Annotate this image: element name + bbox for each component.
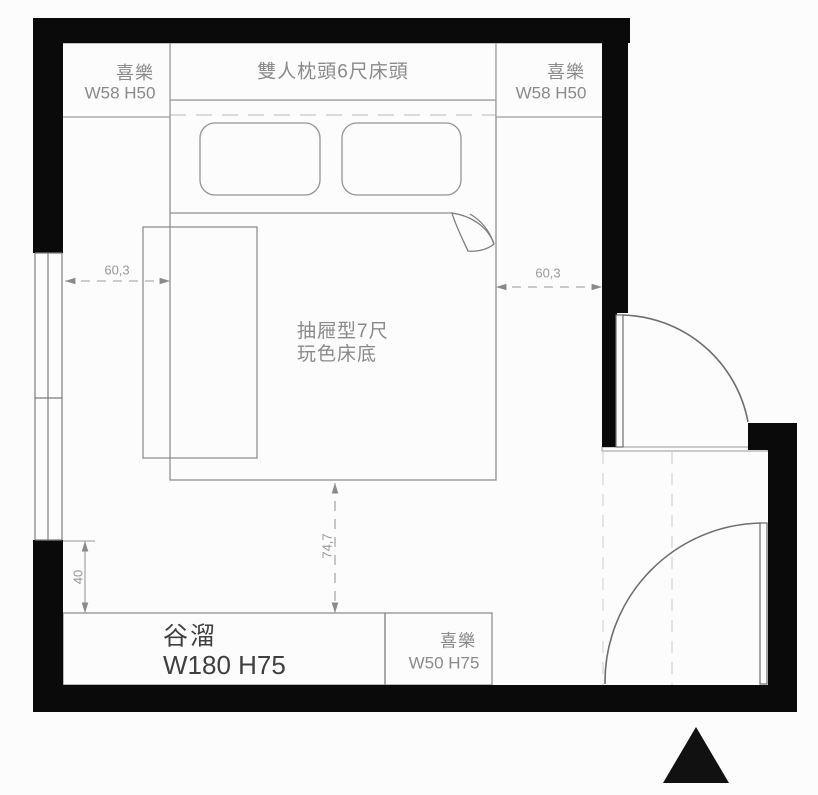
pillow-left <box>200 123 320 195</box>
dimension-label-bottom-gap: 74,7 <box>321 533 334 558</box>
bed-base-label-line2: 玩色床底 <box>297 343 389 366</box>
bed-base-label-line1: 抽屜型7尺 <box>297 320 389 343</box>
headboard-label: 雙人枕頭6尺床頭 <box>257 63 409 82</box>
door-leaf-top <box>616 315 623 447</box>
cabinet-top-right-size: W58 H50 <box>516 85 587 102</box>
wall-bottom <box>33 685 797 712</box>
wall-right-upper <box>602 18 628 313</box>
wall-left-lower <box>33 540 63 690</box>
floor-plan-drawing <box>0 0 818 795</box>
cabinet-bottom-right-name: 喜樂 <box>440 633 476 650</box>
door-threshold <box>602 447 768 451</box>
dimension-label-wall-gap: 40 <box>72 570 85 584</box>
door-swing-arc-entry <box>605 523 761 684</box>
wall-left-upper <box>33 18 63 253</box>
wall-right-lower <box>768 450 797 690</box>
door-swing-arc-top <box>622 315 748 422</box>
wall-top <box>33 18 630 43</box>
pillow-right <box>342 123 461 195</box>
side-unit-outline <box>143 227 257 458</box>
sheet-corner-curl <box>452 213 494 251</box>
wall-stub-right <box>748 423 797 450</box>
bed-base-label: 抽屜型7尺 玩色床底 <box>297 320 389 366</box>
cabinet-bottom-size: W180 H75 <box>163 652 286 678</box>
orientation-triangle-marker <box>663 727 729 783</box>
cabinet-top-left-name: 喜樂 <box>116 64 154 82</box>
cabinet-bottom-name: 谷溜 <box>163 625 217 650</box>
dimension-label-right-gap: 60,3 <box>535 267 560 280</box>
bed-outline <box>170 100 496 480</box>
dimension-label-left-gap: 60,3 <box>104 264 129 277</box>
wall-right-door-jamb <box>602 313 617 447</box>
cabinet-top-left-size: W58 H50 <box>85 85 156 102</box>
door-leaf-entry <box>760 523 767 684</box>
cabinet-bottom-right-size: W50 H75 <box>409 655 480 672</box>
floor-plan: 喜樂 W58 H50 雙人枕頭6尺床頭 喜樂 W58 H50 抽屜型7尺 玩色床… <box>0 0 818 795</box>
cabinet-top-right-name: 喜樂 <box>547 63 585 81</box>
